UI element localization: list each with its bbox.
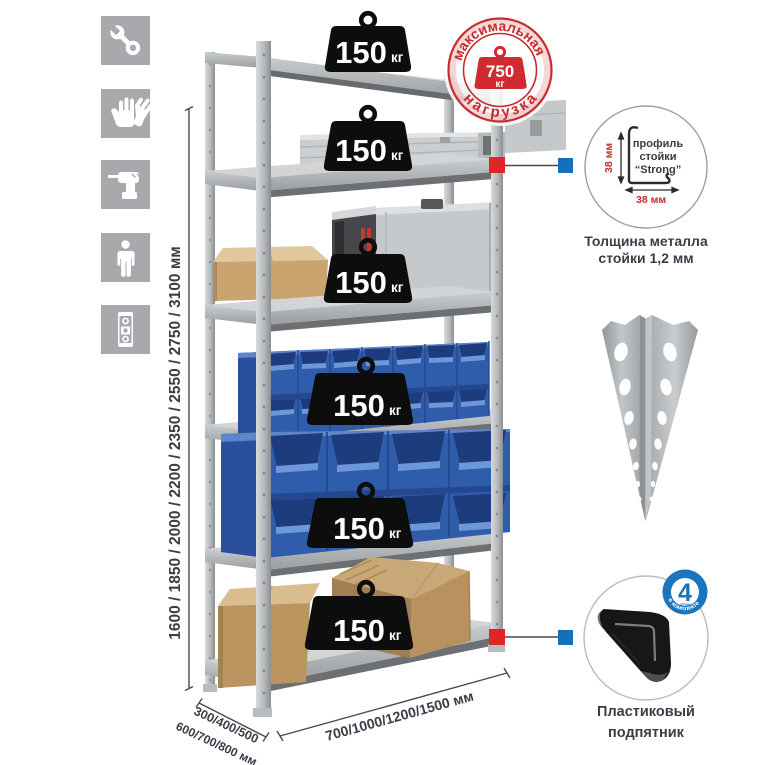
svg-text:38 мм: 38 мм — [636, 194, 666, 206]
svg-text:кг: кг — [391, 280, 404, 295]
svg-text:стойки: стойки — [639, 151, 676, 163]
svg-text:150: 150 — [333, 388, 385, 423]
svg-text:кг: кг — [389, 526, 402, 541]
svg-text:стойки 1,2 мм: стойки 1,2 мм — [598, 250, 693, 266]
svg-text:150: 150 — [335, 35, 387, 70]
svg-text:150: 150 — [335, 265, 387, 300]
svg-text:кг: кг — [391, 148, 404, 163]
svg-text:подпятник: подпятник — [608, 725, 685, 741]
svg-text:38 мм: 38 мм — [603, 143, 615, 173]
svg-text:Пластиковый: Пластиковый — [597, 704, 695, 720]
svg-text:кг: кг — [495, 79, 504, 90]
svg-text:кг: кг — [389, 403, 402, 418]
svg-text:профиль: профиль — [633, 138, 683, 150]
svg-text:150: 150 — [333, 511, 385, 546]
svg-text:“Strong”: “Strong” — [635, 164, 681, 176]
svg-text:Толщина металла: Толщина металла — [584, 233, 708, 249]
svg-text:кг: кг — [389, 628, 402, 643]
svg-text:150: 150 — [333, 613, 385, 648]
svg-text:кг: кг — [391, 50, 404, 65]
svg-text:150: 150 — [335, 133, 387, 168]
svg-text:1600 / 1850 / 2000 / 2200 / 23: 1600 / 1850 / 2000 / 2200 / 2350 / 2550 … — [167, 246, 184, 640]
